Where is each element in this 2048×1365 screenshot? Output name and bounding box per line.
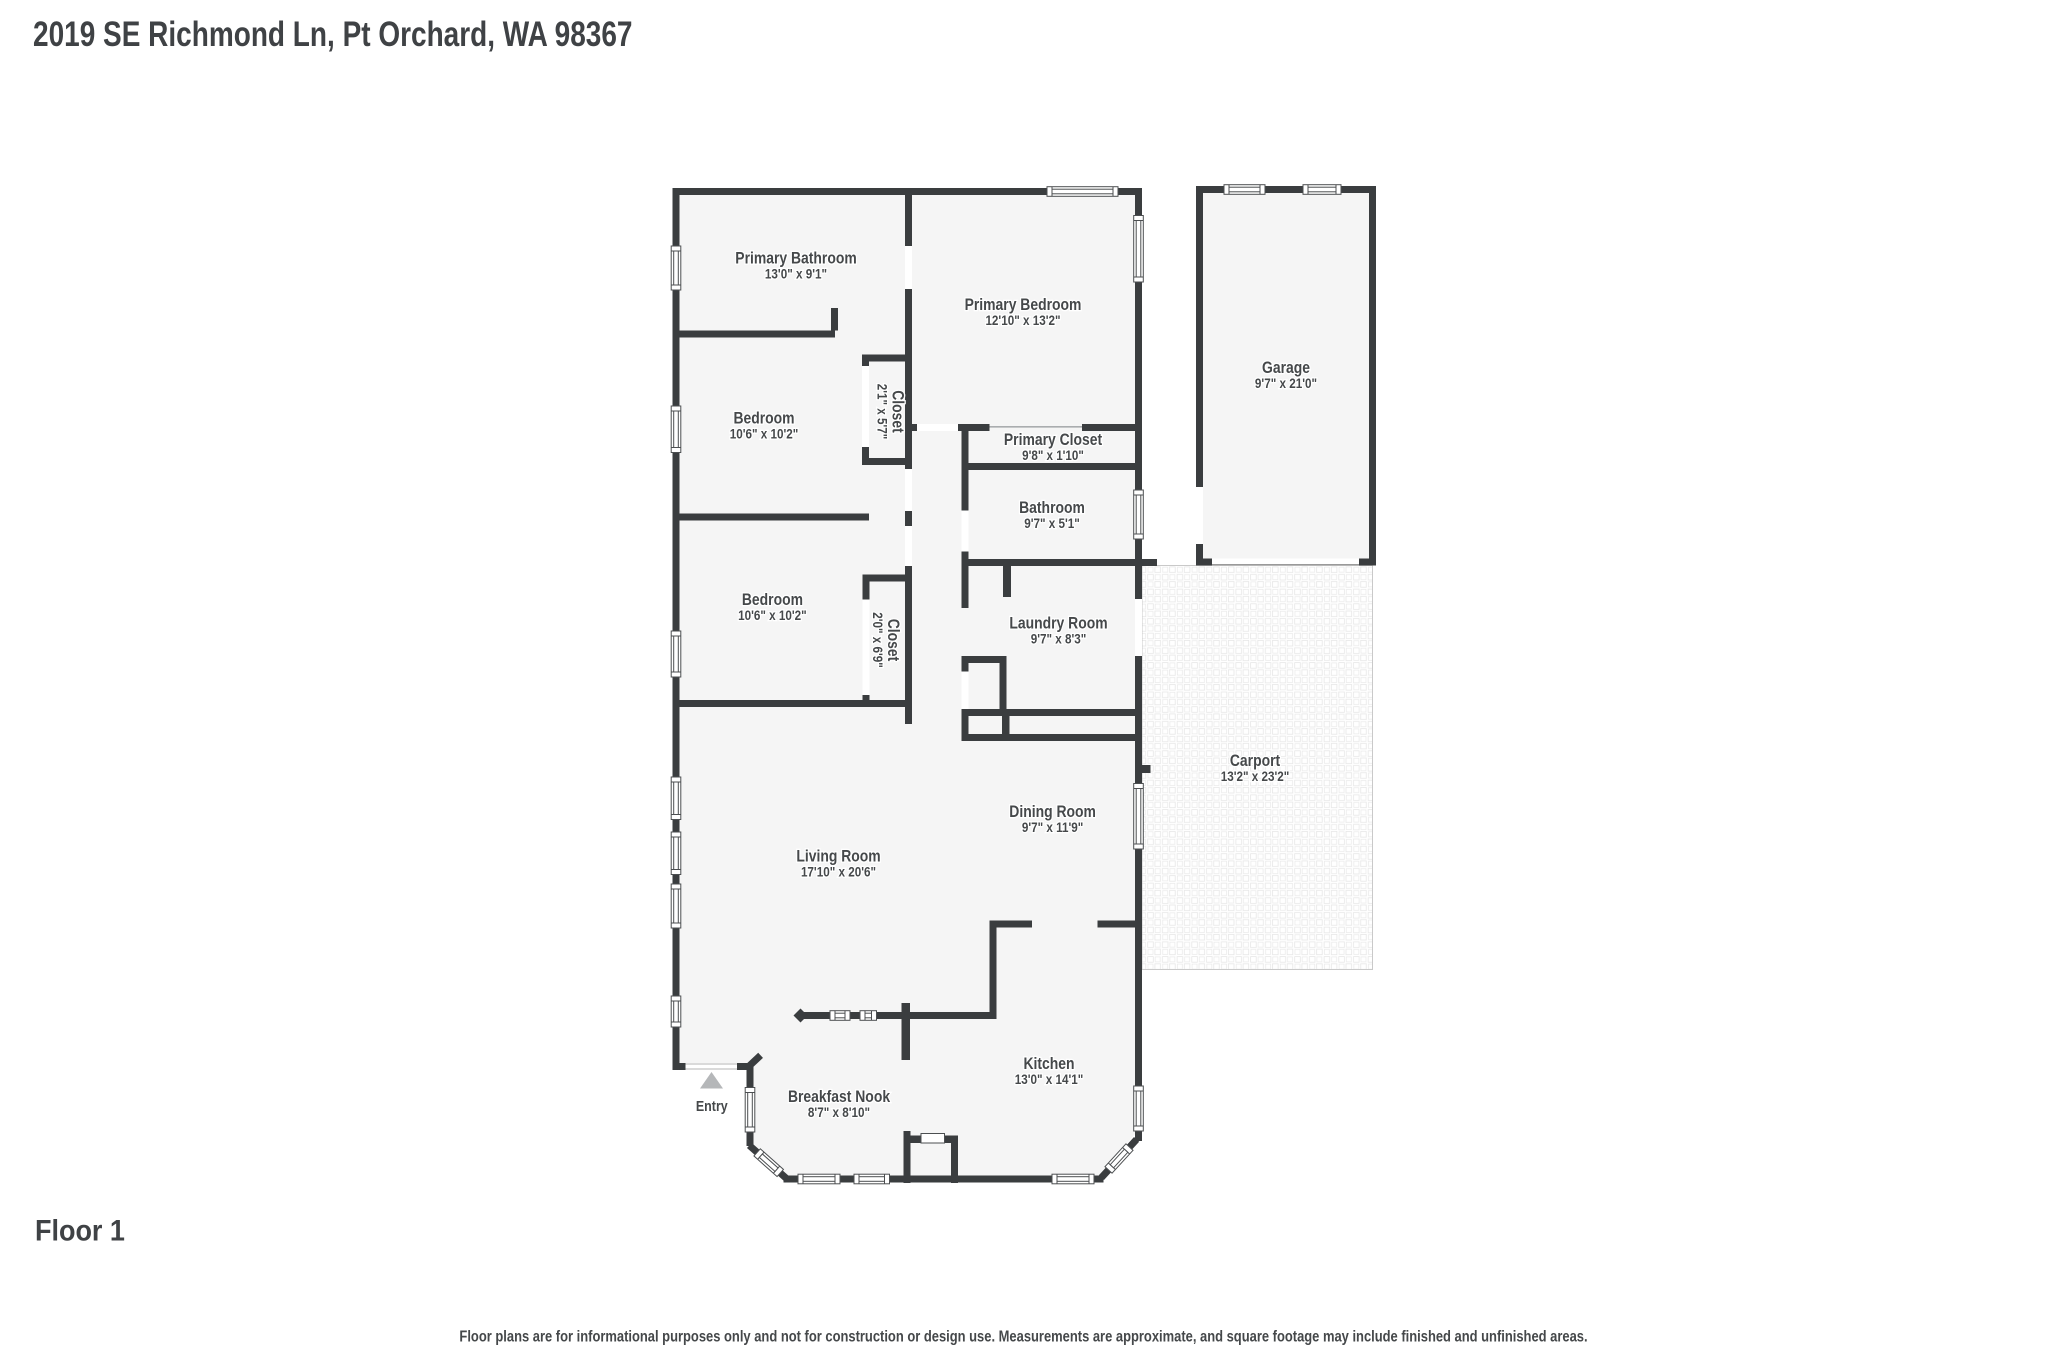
svg-text:Bathroom: Bathroom [1019, 499, 1085, 517]
svg-text:Entry: Entry [696, 1098, 728, 1114]
svg-text:13'0" x 9'1": 13'0" x 9'1" [765, 266, 827, 281]
svg-text:10'6" x 10'2": 10'6" x 10'2" [730, 426, 799, 441]
svg-text:9'7" x 11'9": 9'7" x 11'9" [1022, 820, 1083, 835]
svg-text:Carport: Carport [1230, 752, 1280, 770]
svg-text:12'10" x 13'2": 12'10" x 13'2" [985, 313, 1060, 328]
svg-text:13'0" x 14'1": 13'0" x 14'1" [1015, 1072, 1084, 1087]
svg-text:Bedroom: Bedroom [742, 591, 803, 609]
svg-text:Laundry Room: Laundry Room [1009, 614, 1107, 632]
svg-text:Closet: Closet [888, 390, 906, 433]
svg-text:2019 SE Richmond Ln, Pt Orchar: 2019 SE Richmond Ln, Pt Orchard, WA 9836… [33, 14, 632, 54]
svg-text:Floor 1: Floor 1 [35, 1214, 125, 1248]
svg-text:Living Room: Living Room [796, 847, 880, 865]
svg-text:2'0" x 6'9": 2'0" x 6'9" [870, 612, 885, 668]
svg-text:9'8" x 1'10": 9'8" x 1'10" [1022, 448, 1084, 463]
svg-text:Primary Closet: Primary Closet [1004, 431, 1102, 449]
svg-text:8'7" x 8'10": 8'7" x 8'10" [808, 1105, 870, 1120]
svg-text:9'7" x 8'3": 9'7" x 8'3" [1031, 631, 1087, 646]
svg-text:2'1" x 5'7": 2'1" x 5'7" [874, 384, 889, 440]
svg-text:13'2" x 23'2": 13'2" x 23'2" [1221, 769, 1290, 784]
svg-text:10'6" x 10'2": 10'6" x 10'2" [738, 608, 807, 623]
svg-text:9'7" x 5'1": 9'7" x 5'1" [1024, 516, 1080, 531]
svg-text:Kitchen: Kitchen [1023, 1055, 1074, 1073]
svg-text:Closet: Closet [884, 619, 902, 662]
svg-text:Garage: Garage [1262, 359, 1310, 377]
svg-text:Primary Bedroom: Primary Bedroom [965, 296, 1082, 314]
svg-text:Primary Bathroom: Primary Bathroom [735, 249, 856, 267]
svg-text:Dining Room: Dining Room [1009, 803, 1096, 821]
svg-text:Bedroom: Bedroom [733, 409, 794, 427]
svg-text:Floor plans are for informatio: Floor plans are for informational purpos… [459, 1328, 1587, 1345]
svg-text:Breakfast Nook: Breakfast Nook [788, 1088, 891, 1106]
svg-text:17'10" x 20'6": 17'10" x 20'6" [801, 864, 876, 879]
svg-text:9'7" x 21'0": 9'7" x 21'0" [1255, 376, 1317, 391]
